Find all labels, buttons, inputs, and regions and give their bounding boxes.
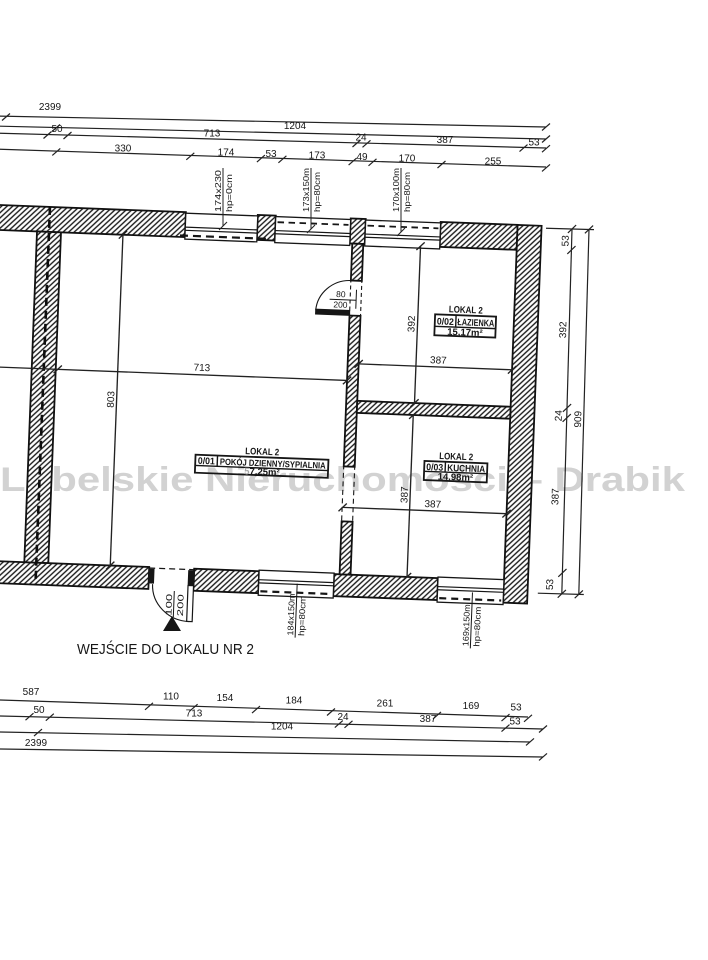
- svg-text:387: 387: [424, 499, 442, 511]
- svg-text:15,17m²: 15,17m²: [447, 327, 483, 339]
- svg-text:24: 24: [355, 133, 367, 144]
- svg-text:174: 174: [218, 147, 235, 158]
- svg-text:WEJŚCIE DO LOKALU NR 2: WEJŚCIE DO LOKALU NR 2: [77, 640, 254, 658]
- svg-text:713: 713: [204, 129, 221, 140]
- svg-text:154: 154: [217, 693, 234, 704]
- svg-text:hp=80cm: hp=80cm: [471, 606, 483, 646]
- svg-text:255: 255: [485, 156, 502, 167]
- svg-text:24: 24: [337, 712, 349, 723]
- svg-text:387: 387: [430, 355, 448, 367]
- svg-text:587: 587: [23, 687, 40, 698]
- svg-text:14,98m²: 14,98m²: [437, 472, 473, 484]
- svg-text:713: 713: [186, 709, 203, 720]
- svg-text:713: 713: [193, 363, 211, 375]
- svg-text:49: 49: [356, 152, 368, 163]
- svg-text:184x150m: 184x150m: [285, 593, 297, 635]
- svg-text:392: 392: [558, 321, 569, 338]
- svg-text:hp=80cm: hp=80cm: [312, 172, 322, 212]
- svg-text:53: 53: [545, 578, 556, 590]
- svg-text:50: 50: [33, 705, 45, 716]
- svg-text:387: 387: [420, 714, 437, 725]
- svg-text:387: 387: [437, 135, 454, 146]
- svg-text:0/01: 0/01: [198, 456, 216, 468]
- svg-text:261: 261: [377, 698, 394, 709]
- svg-text:100: 100: [163, 593, 174, 616]
- svg-text:170x100m: 170x100m: [391, 168, 401, 212]
- svg-text:184: 184: [286, 695, 303, 706]
- svg-text:1204: 1204: [271, 721, 294, 732]
- svg-text:392: 392: [406, 315, 418, 333]
- svg-text:170: 170: [399, 153, 416, 164]
- svg-text:24: 24: [554, 410, 565, 422]
- svg-text:53: 53: [528, 137, 540, 148]
- svg-text:387: 387: [399, 486, 411, 504]
- svg-text:hp=0cm: hp=0cm: [224, 174, 234, 212]
- svg-text:57,25m²: 57,25m²: [244, 466, 280, 478]
- svg-text:169: 169: [463, 701, 480, 712]
- svg-text:330: 330: [115, 144, 132, 155]
- svg-text:169x150m: 169x150m: [460, 604, 472, 646]
- svg-text:2399: 2399: [25, 738, 48, 749]
- svg-text:200: 200: [175, 594, 186, 617]
- svg-text:387: 387: [550, 488, 561, 505]
- svg-text:53: 53: [509, 716, 521, 727]
- svg-text:50: 50: [51, 124, 63, 135]
- svg-text:hp=80cm: hp=80cm: [402, 172, 412, 212]
- svg-text:hp=80cm: hp=80cm: [296, 596, 308, 636]
- svg-text:174x230: 174x230: [213, 170, 223, 212]
- svg-text:173x150m: 173x150m: [301, 168, 311, 212]
- svg-text:80: 80: [336, 289, 346, 299]
- svg-text:53: 53: [510, 703, 522, 714]
- svg-text:53: 53: [561, 235, 572, 247]
- svg-text:2399: 2399: [39, 102, 62, 113]
- svg-text:53: 53: [265, 149, 277, 160]
- svg-text:173: 173: [309, 150, 326, 161]
- svg-text:803: 803: [106, 390, 118, 408]
- svg-text:1204: 1204: [284, 121, 307, 132]
- svg-text:909: 909: [573, 410, 584, 427]
- svg-text:110: 110: [163, 692, 179, 703]
- svg-text:200: 200: [333, 299, 348, 310]
